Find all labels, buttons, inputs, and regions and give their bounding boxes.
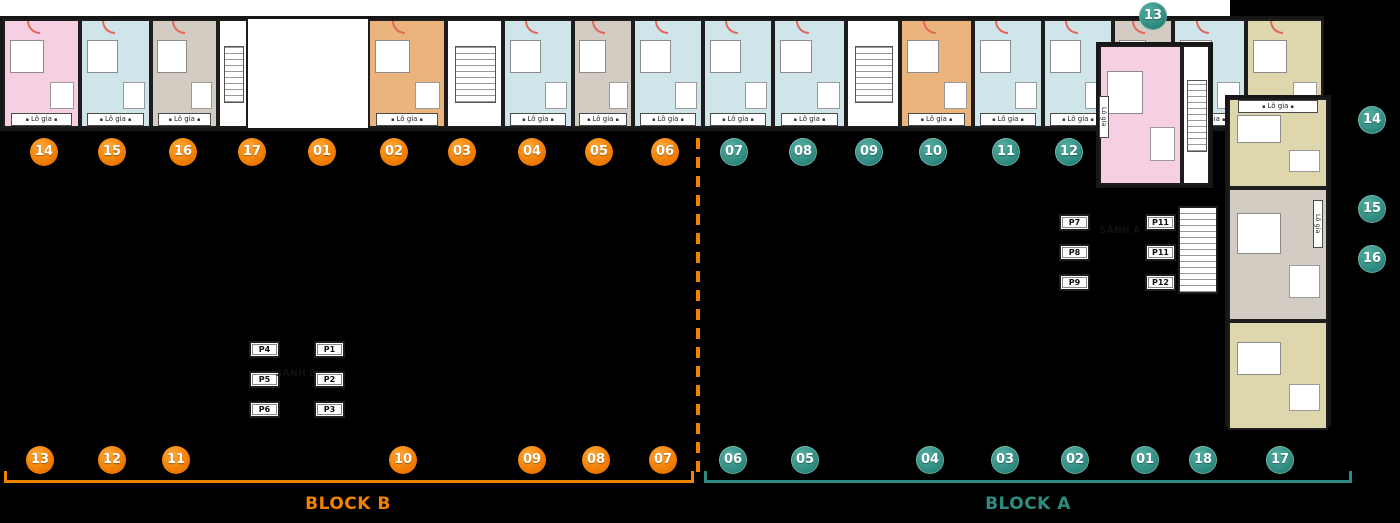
unit-badge-bottom-05[interactable]: 05 — [791, 446, 819, 474]
door-arc — [1196, 21, 1209, 34]
staircase — [446, 19, 503, 128]
door-arc — [1065, 21, 1078, 34]
balcony-label: Lô gia — [980, 113, 1035, 126]
unit-badge-bottom-02[interactable]: 02 — [1061, 446, 1089, 474]
unit-badge-top-09[interactable]: 09 — [855, 138, 883, 166]
apartment-unit[interactable]: Lô gia — [633, 19, 703, 128]
balcony-label: Lô gia — [1238, 100, 1319, 113]
lift-p12: P12 — [1145, 274, 1176, 291]
unit-badge-top-03[interactable]: 03 — [448, 138, 476, 166]
door-arc — [592, 21, 605, 34]
unit-badge-bottom-11[interactable]: 11 — [162, 446, 190, 474]
lift-p11: P11 — [1145, 214, 1176, 231]
apartment-unit[interactable]: Lô gia — [900, 19, 973, 128]
right-wing: Lô gia — [1225, 95, 1331, 427]
unit-badge-top-16[interactable]: 16 — [169, 138, 197, 166]
unit-badge-top-07[interactable]: 07 — [720, 138, 748, 166]
unit-badge-bottom-12[interactable]: 12 — [98, 446, 126, 474]
unit-badge-top-12[interactable]: 12 — [1055, 138, 1083, 166]
apartment-unit[interactable]: Lô gia — [503, 19, 573, 128]
balcony-label: Lô gia — [579, 113, 626, 126]
unit-badge-bottom-18[interactable]: 18 — [1189, 446, 1217, 474]
lift-p6: P6 — [249, 401, 280, 418]
lift-p1: P1 — [314, 341, 345, 358]
lift-p8: P8 — [1059, 244, 1090, 261]
lift-p2: P2 — [314, 371, 345, 388]
balcony-label: Lô gia — [908, 113, 966, 126]
lobby-a-label: SẢNH A — [1094, 225, 1146, 236]
door-arc — [796, 21, 809, 34]
apartment-unit[interactable]: Lô gia — [703, 19, 773, 128]
door-arc — [392, 21, 405, 34]
balcony-label: Lô gia — [510, 113, 565, 126]
staircase — [846, 19, 900, 128]
apartment-unit[interactable]: Lô gia — [151, 19, 218, 128]
door-arc — [655, 21, 668, 34]
balcony-label: Lô gia — [376, 113, 438, 126]
door-arc — [172, 21, 185, 34]
block-b-bracket — [4, 480, 694, 483]
unit-badge-top-11[interactable]: 11 — [992, 138, 1020, 166]
lift-p9: P9 — [1059, 274, 1090, 291]
unit-badge-bottom-17[interactable]: 17 — [1266, 446, 1294, 474]
staircase — [1182, 45, 1210, 185]
block-a-bracket — [704, 480, 1352, 483]
unit-badge-bottom-01[interactable]: 01 — [1131, 446, 1159, 474]
lift-bank-b-left: P4P5P6 — [249, 341, 280, 418]
tower-wing — [1096, 42, 1213, 188]
staircase — [218, 19, 248, 128]
floor-plan-canvas: Lô giaLô giaLô giaLô giaLô giaLô giaLô g… — [0, 0, 1400, 523]
apartment-unit[interactable]: Lô gia — [80, 19, 151, 128]
unit-badge-bottom-08[interactable]: 08 — [582, 446, 610, 474]
balcony-label: Lô gia — [710, 113, 765, 126]
unit-badge-right-15[interactable]: 15 — [1358, 195, 1386, 223]
lift-p11: P11 — [1145, 244, 1176, 261]
unit-badge-bottom-04[interactable]: 04 — [916, 446, 944, 474]
balcony-label: Lô gia — [11, 113, 72, 126]
balcony-label: Lô gia — [87, 113, 143, 126]
balcony-label: Lô gia — [1313, 200, 1323, 248]
staircase-a — [1178, 206, 1218, 294]
block-a-label: BLOCK A — [985, 494, 1071, 514]
lift-p4: P4 — [249, 341, 280, 358]
unit-badge-top-17[interactable]: 17 — [238, 138, 266, 166]
door-arc — [923, 21, 936, 34]
apartment-unit[interactable]: Lô gia — [1228, 98, 1328, 188]
unit-badge-bottom-03[interactable]: 03 — [991, 446, 1019, 474]
lift-bank-a-right: P11P11P12 — [1145, 214, 1176, 291]
apartment-unit[interactable]: Lô gia — [973, 19, 1043, 128]
unit-badge-top-15[interactable]: 15 — [98, 138, 126, 166]
door-arc — [1270, 21, 1283, 34]
unit-badge-top-14[interactable]: 14 — [30, 138, 58, 166]
lift-p3: P3 — [314, 401, 345, 418]
apartment-unit[interactable]: Lô gia — [3, 19, 80, 128]
lift-bank-b-right: P1P2P3 — [314, 341, 345, 418]
door-arc — [995, 21, 1008, 34]
lift-p7: P7 — [1059, 214, 1090, 231]
unit-badge-top-01[interactable]: 01 — [308, 138, 336, 166]
unit-badge-bottom-13[interactable]: 13 — [26, 446, 54, 474]
unit-badge-bottom-10[interactable]: 10 — [389, 446, 417, 474]
unit-badge-top-06[interactable]: 06 — [651, 138, 679, 166]
unit-badge-top-05[interactable]: 05 — [585, 138, 613, 166]
door-arc — [725, 21, 738, 34]
apartment-unit[interactable] — [1228, 321, 1328, 430]
balcony-label: Lô gia — [640, 113, 695, 126]
unit-badge-top-02[interactable]: 02 — [380, 138, 408, 166]
balcony-label: Lô gia — [1099, 96, 1109, 138]
unit-badge-bottom-06[interactable]: 06 — [719, 446, 747, 474]
apartment-unit[interactable]: Lô gia — [573, 19, 633, 128]
unit-badge-right-14[interactable]: 14 — [1358, 106, 1386, 134]
apartment-unit[interactable]: Lô gia — [368, 19, 446, 128]
apartment-unit[interactable]: Lô gia — [773, 19, 846, 128]
unit-badge-top-08[interactable]: 08 — [789, 138, 817, 166]
block-b-label: BLOCK B — [305, 494, 391, 514]
block-divider-dashed-line — [696, 138, 700, 480]
unit-badge-top-10[interactable]: 10 — [919, 138, 947, 166]
unit-badge-tower-13[interactable]: 13 — [1139, 2, 1167, 30]
lift-bank-a-left: P7P8P9 — [1059, 214, 1090, 291]
unit-badge-right-16[interactable]: 16 — [1358, 245, 1386, 273]
apartment-unit[interactable] — [1099, 45, 1182, 185]
door-arc — [102, 21, 115, 34]
corridor — [0, 0, 1230, 16]
unit-badge-top-04[interactable]: 04 — [518, 138, 546, 166]
balcony-label: Lô gia — [781, 113, 839, 126]
unit-badge-bottom-09[interactable]: 09 — [518, 446, 546, 474]
door-arc — [27, 21, 40, 34]
door-arc — [525, 21, 538, 34]
balcony-label: Lô gia — [158, 113, 211, 126]
unit-badge-bottom-07[interactable]: 07 — [649, 446, 677, 474]
